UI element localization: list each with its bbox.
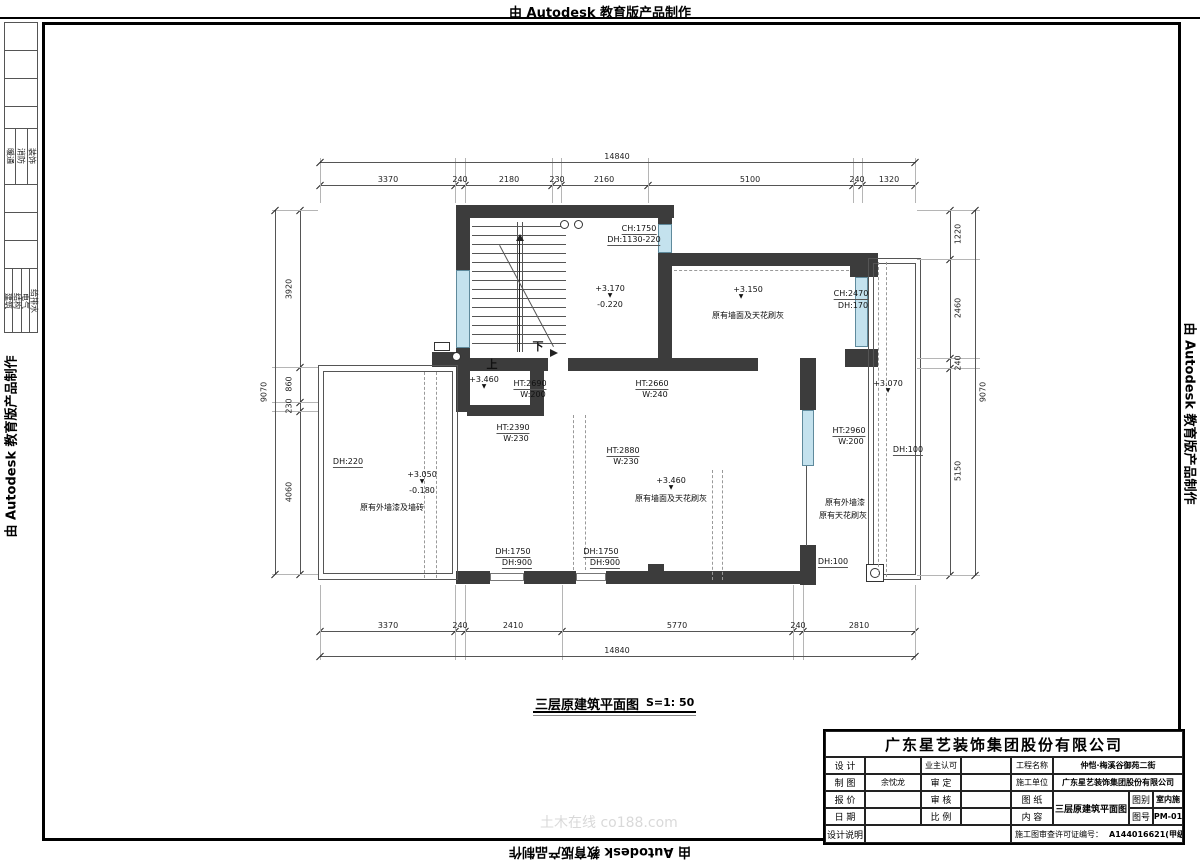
plan-annotation: DH:900 — [590, 558, 620, 569]
dimension-label: 9070 — [979, 382, 988, 402]
dimension-label: 14840 — [604, 646, 629, 655]
dimension-dline — [320, 631, 915, 632]
discipline-stamp: 给排水 — [28, 289, 39, 313]
dimension-extline — [917, 259, 980, 260]
window-low — [490, 573, 524, 581]
builder-value: 广东星艺装饰集团股份有限公司 — [1053, 774, 1183, 791]
dimension-label: 3920 — [285, 279, 294, 299]
wall — [648, 564, 664, 584]
stair-up-arrow-icon — [516, 234, 524, 241]
stair-stringer — [517, 222, 518, 352]
plan-annotation: W:240 — [642, 390, 667, 399]
dimension-extline — [272, 210, 318, 211]
window-low — [576, 573, 606, 581]
owner-approve-value — [961, 757, 1011, 774]
plan-annotation: +3.150 — [733, 285, 763, 294]
plan-annotation: DH:220 — [333, 457, 363, 468]
terrace-outline-inner — [873, 263, 916, 575]
riser-circle-icon — [452, 352, 461, 361]
dimension-extline — [320, 585, 321, 660]
project-value: 仲恺·梅溪谷御苑二街 — [1053, 757, 1183, 774]
dashed-line — [886, 262, 887, 577]
date-value — [865, 808, 921, 825]
plan-annotation: 原有外墙漆 — [825, 498, 865, 507]
plan-annotation: ▼ — [482, 384, 487, 390]
cert-value: A144016621(甲级) — [1109, 829, 1183, 840]
dimension-extline — [915, 585, 916, 660]
wall — [524, 571, 576, 584]
dimension-dline — [320, 162, 915, 163]
design-value — [865, 757, 921, 774]
wall — [467, 405, 544, 416]
plan-annotation: ▼ — [669, 485, 674, 491]
ratio-label: 比 例 — [921, 808, 961, 825]
dimension-extline — [915, 158, 916, 203]
riser-circle-icon — [560, 220, 569, 229]
plan-annotation: W:200 — [520, 390, 545, 399]
type-value: 室内施 — [1153, 791, 1183, 808]
dimension-extline — [648, 158, 649, 203]
builder-label: 施工单位 — [1011, 774, 1053, 791]
dimension-dline — [950, 210, 951, 575]
window — [456, 270, 470, 348]
dashed-line — [674, 270, 849, 271]
dimension-label: 1320 — [879, 175, 899, 184]
wall — [456, 571, 490, 584]
dimension-label: 240 — [954, 355, 963, 370]
plan-annotation: DH:100 — [893, 445, 923, 456]
plan-annotation: DH:1130-220 — [607, 235, 660, 246]
cert-cell: 施工图审查许可证编号： A144016621(甲级) — [1011, 825, 1183, 843]
dimension-label: 240 — [790, 621, 805, 630]
dimension-extline — [917, 575, 980, 576]
wall — [800, 545, 816, 585]
dimension-label: 5150 — [954, 461, 963, 481]
dimension-label: 9070 — [260, 382, 269, 402]
dimension-label: 860 — [285, 376, 294, 391]
plan-annotation: 原有墙面及天花刷灰 — [712, 311, 784, 320]
dimension-label: 230 — [285, 398, 294, 413]
strip-divider — [4, 128, 38, 129]
plan-annotation: CH:1750 — [622, 224, 657, 235]
dimension-dline — [300, 210, 301, 574]
date-label: 日 期 — [825, 808, 865, 825]
dimension-label: 240 — [849, 175, 864, 184]
ratio-value — [961, 808, 1011, 825]
sheetno-label: 图号 — [1129, 808, 1153, 825]
wall — [672, 253, 852, 266]
dimension-label: 2810 — [849, 621, 869, 630]
dashed-line — [722, 470, 723, 580]
strip-divider — [4, 240, 38, 241]
approve-label: 审 定 — [921, 774, 961, 791]
dimension-label: 1220 — [954, 224, 963, 244]
project-label: 工程名称 — [1011, 757, 1053, 774]
dimension-label: 14840 — [604, 152, 629, 161]
dimension-label: 5770 — [667, 621, 687, 630]
check-label: 审 核 — [921, 791, 961, 808]
plan-annotation: DH:170 — [838, 301, 868, 310]
dimension-label: 3370 — [378, 621, 398, 630]
strip-divider — [4, 184, 38, 185]
plan-annotation: HT:2660 — [635, 379, 668, 390]
watermark: 土木在线 co188.com — [540, 812, 678, 832]
dimension-extline — [917, 368, 980, 369]
discipline-stamp: 装饰 — [27, 148, 38, 164]
plan-annotation: CH:2470 — [834, 289, 869, 300]
wall-thin-line — [806, 466, 807, 546]
dimension-label: 3370 — [378, 175, 398, 184]
autodesk-stamp-bottom: 由 Autodesk 教育版产品制作 — [490, 844, 710, 863]
plan-annotation: HT:2390 — [496, 423, 529, 434]
plan-scale: S=1: 50 — [646, 696, 694, 709]
plan-annotation: -0.180 — [409, 486, 435, 495]
plan-annotation: DH:1750 — [583, 547, 618, 558]
plan-annotation: 下 — [533, 342, 544, 351]
owner-approve-label: 业主认可 — [921, 757, 961, 774]
dimension-label: 230 — [549, 175, 564, 184]
plan-annotation: ▼ — [608, 293, 613, 299]
dimension-label: 4060 — [285, 482, 294, 502]
riser-circle-icon — [574, 220, 583, 229]
window — [855, 277, 868, 347]
plan-annotation: DH:1750 — [495, 547, 530, 558]
dimension-dline — [275, 210, 276, 574]
wall — [664, 571, 801, 584]
border-top-line — [0, 17, 1200, 19]
wall — [606, 571, 650, 584]
discipline-stamp: 暖通 — [4, 148, 15, 164]
dimension-label: 240 — [452, 621, 467, 630]
strip-divider — [4, 106, 38, 107]
dimension-extline — [272, 574, 318, 575]
sheetno-value: PM-01 — [1153, 808, 1183, 825]
wall — [456, 205, 674, 218]
draft-value: 余忱龙 — [865, 774, 921, 791]
drawing-canvas: 由 Autodesk 教育版产品制作 由 Autodesk 教育版产品制作 由 … — [0, 0, 1200, 859]
plan-annotation: ▼ — [420, 479, 425, 485]
dimension-extline — [562, 585, 563, 660]
plan-annotation: -0.220 — [597, 300, 623, 309]
wall — [568, 358, 758, 371]
dimension-extline — [272, 367, 318, 368]
dimension-dline — [320, 656, 915, 657]
quote-value — [865, 791, 921, 808]
plan-title-underline — [533, 711, 696, 713]
dimension-dline — [975, 210, 976, 575]
plan-annotation: DH:100 — [818, 557, 848, 568]
type-label: 图别 — [1129, 791, 1153, 808]
plan-annotation: ▼ — [739, 294, 744, 300]
plan-annotation: ▼ — [886, 388, 891, 394]
discipline-stamp: 消防 — [16, 148, 27, 164]
company-name: 广东星艺装饰集团股份有限公司 — [825, 731, 1183, 757]
autodesk-stamp-left: 由 Autodesk 教育版产品制作 — [1, 337, 20, 557]
dashed-line — [712, 470, 713, 580]
drawing-frame — [42, 22, 1181, 841]
dimension-extline — [917, 210, 980, 211]
plan-annotation: HT:2690 — [513, 379, 546, 390]
dimension-label: 240 — [452, 175, 467, 184]
plan-annotation: W:200 — [838, 437, 863, 446]
dashed-line — [878, 262, 879, 577]
strip-divider — [4, 212, 38, 213]
wall — [470, 358, 548, 371]
plan-annotation: 原有天花刷灰 — [819, 511, 867, 520]
dimension-label: 5100 — [740, 175, 760, 184]
dimension-extline — [272, 411, 318, 412]
plan-annotation: DH:900 — [502, 558, 532, 569]
approve-value — [961, 774, 1011, 791]
plan-title-underline-thin — [533, 715, 696, 716]
autodesk-stamp-right: 由 Autodesk 教育版产品制作 — [1182, 304, 1200, 524]
dimension-extline — [320, 158, 321, 203]
dimension-label: 2180 — [499, 175, 519, 184]
dimension-extline — [272, 402, 318, 403]
fixture-box-icon — [434, 342, 450, 351]
stair-arrow-line — [519, 240, 520, 352]
draft-label: 制 图 — [825, 774, 865, 791]
cert-label: 施工图审查许可证编号： — [1015, 829, 1103, 840]
content-label: 内 容 — [1011, 808, 1053, 825]
plan-annotation: 原有墙面及天花刷灰 — [635, 494, 707, 503]
dashed-line — [573, 415, 574, 570]
titleblock: 广东星艺装饰集团股份有限公司 设 计 业主认可 工程名称 仲恺·梅溪谷御苑二街 … — [823, 729, 1185, 845]
design-label: 设 计 — [825, 757, 865, 774]
dimension-label: 2460 — [954, 298, 963, 318]
sheet-label: 图 纸 — [1011, 791, 1053, 808]
strip-divider — [4, 50, 38, 51]
dimension-extline — [917, 358, 980, 359]
wall — [800, 358, 816, 410]
sheet-content: 三层原建筑平面图 — [1053, 791, 1129, 825]
stair-down-arrow-icon — [550, 349, 558, 357]
wall — [456, 218, 470, 272]
plan-annotation: HT:2960 — [832, 426, 865, 437]
dimension-label: 2160 — [594, 175, 614, 184]
quote-label: 报 价 — [825, 791, 865, 808]
notes-value — [865, 825, 1011, 843]
dimension-label: 2410 — [503, 621, 523, 630]
plan-annotation: 原有外墙漆及墙砖 — [360, 503, 424, 512]
plan-annotation: W:230 — [503, 434, 528, 443]
notes-label: 设计说明 — [825, 825, 865, 843]
plan-annotation: 上 — [487, 360, 498, 369]
dimension-dline — [320, 185, 915, 186]
plan-annotation: W:230 — [613, 457, 638, 466]
window — [802, 410, 814, 466]
strip-divider — [4, 78, 38, 79]
stair-tread — [472, 226, 566, 227]
check-value — [961, 791, 1011, 808]
plan-annotation: HT:2880 — [606, 446, 639, 457]
